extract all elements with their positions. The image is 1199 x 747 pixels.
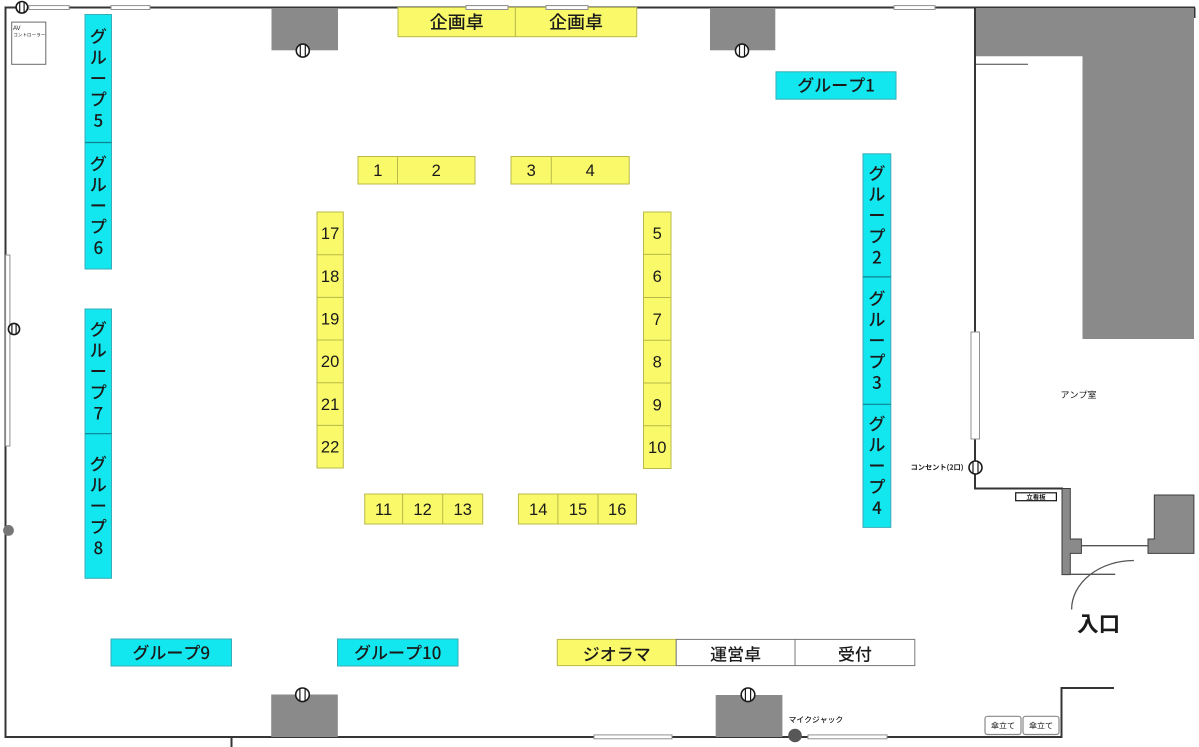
svg-text:3: 3 (527, 162, 536, 180)
svg-text:15: 15 (569, 501, 587, 519)
svg-text:4: 4 (586, 162, 595, 180)
svg-text:12: 12 (413, 501, 431, 519)
svg-text:10: 10 (648, 439, 666, 457)
svg-text:2: 2 (432, 162, 441, 180)
svg-text:19: 19 (321, 311, 339, 329)
svg-text:7: 7 (653, 311, 662, 329)
svg-text:9: 9 (653, 396, 662, 414)
svg-text:18: 18 (321, 268, 339, 286)
svg-text:6: 6 (653, 268, 662, 286)
svg-text:5: 5 (653, 225, 662, 243)
svg-text:11: 11 (375, 501, 392, 519)
svg-text:16: 16 (608, 501, 626, 519)
svg-text:20: 20 (321, 353, 339, 371)
svg-text:22: 22 (321, 439, 339, 457)
svg-text:21: 21 (321, 396, 339, 414)
svg-text:13: 13 (454, 501, 472, 519)
svg-text:AV: AV (13, 26, 21, 32)
svg-text:14: 14 (529, 501, 547, 519)
svg-text:1: 1 (373, 162, 382, 180)
svg-text:17: 17 (321, 225, 339, 243)
svg-text:8: 8 (653, 354, 662, 372)
